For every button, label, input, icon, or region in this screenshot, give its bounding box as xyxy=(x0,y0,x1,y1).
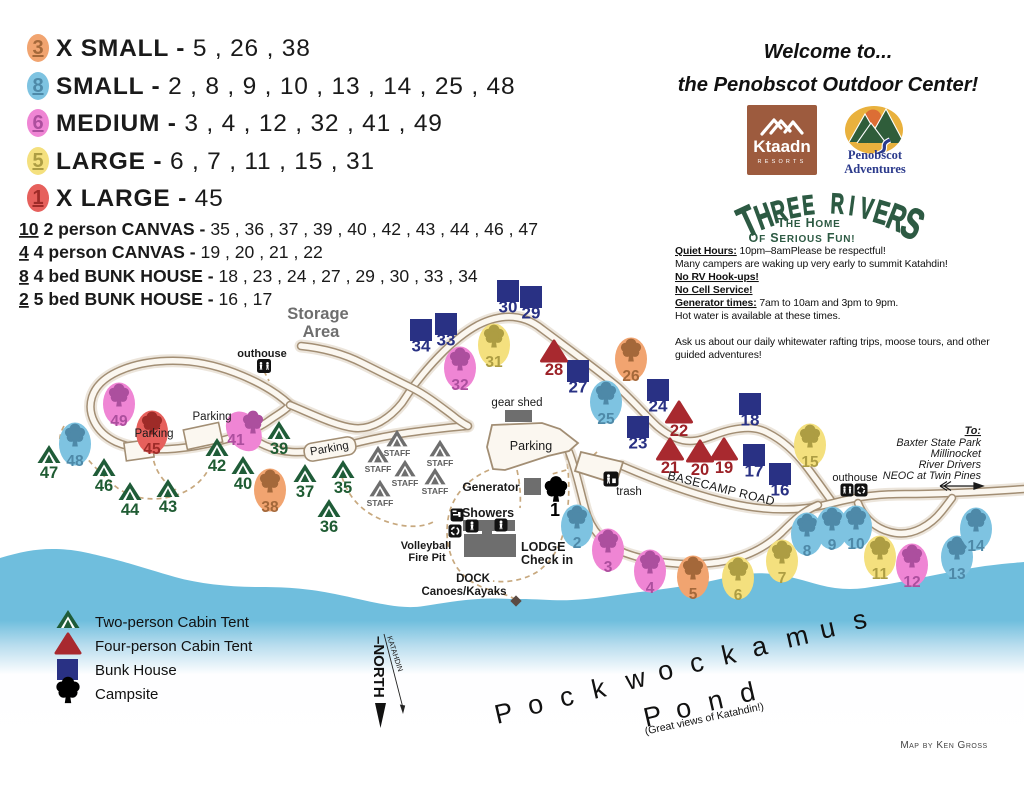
svg-text:Quiet Hours: 10pm–8amPlease be: Quiet Hours: 10pm–8amPlease be respectfu… xyxy=(675,246,886,257)
svg-text:Ask us about our daily whitewa: Ask us about our daily whitewater raftin… xyxy=(675,337,990,348)
svg-text:1: 1 xyxy=(550,500,560,520)
svg-text:44: 44 xyxy=(121,501,140,519)
svg-text:9: 9 xyxy=(828,537,837,554)
svg-text:24: 24 xyxy=(649,397,668,416)
svg-text:STAFF: STAFF xyxy=(427,458,454,468)
svg-text:Campsite: Campsite xyxy=(95,686,158,703)
svg-text:THE HOME: THE HOME xyxy=(777,216,840,230)
svg-text:Canoes/Kayaks: Canoes/Kayaks xyxy=(421,586,506,598)
svg-text:X SMALL - 5 , 26 , 38: X SMALL - 5 , 26 , 38 xyxy=(56,35,311,62)
svg-text:Adventures: Adventures xyxy=(844,162,906,176)
svg-text:No RV Hook-ups!: No RV Hook-ups! xyxy=(675,272,759,283)
svg-text:Parking: Parking xyxy=(193,411,232,423)
svg-text:29: 29 xyxy=(522,304,541,323)
svg-text:–NORTH: –NORTH xyxy=(370,636,387,698)
svg-text:32: 32 xyxy=(451,377,468,394)
svg-text:RESORTS: RESORTS xyxy=(758,159,807,165)
svg-text:R: R xyxy=(830,188,845,221)
svg-text:To:: To: xyxy=(965,425,982,437)
svg-text:OF SERIOUS FUN!: OF SERIOUS FUN! xyxy=(749,231,856,245)
svg-text:MEDIUM - 3 , 4 , 12 , 32 , 41: MEDIUM - 3 , 4 , 12 , 32 , 41 , 49 xyxy=(56,110,443,137)
svg-text:43: 43 xyxy=(159,498,177,516)
svg-text:26: 26 xyxy=(622,368,640,385)
svg-text:Storage: Storage xyxy=(287,305,348,323)
svg-text:STAFF: STAFF xyxy=(392,478,419,488)
svg-text:Fire Pit: Fire Pit xyxy=(408,552,446,564)
svg-text:3: 3 xyxy=(32,37,43,59)
svg-text:STAFF: STAFF xyxy=(384,448,411,458)
svg-text:34: 34 xyxy=(412,337,431,356)
svg-text:35: 35 xyxy=(334,479,352,497)
svg-text:No Cell Service!: No Cell Service! xyxy=(675,285,753,296)
svg-text:40: 40 xyxy=(234,475,252,493)
svg-text:45: 45 xyxy=(143,441,161,458)
svg-text:8 4 bed BUNK HOUSE - 18 , 23 ,: 8 4 bed BUNK HOUSE - 18 , 23 , 24 , 27 ,… xyxy=(19,266,478,286)
svg-text:4 4 person CANVAS - 19 , 20 ,: 4 4 person CANVAS - 19 , 20 , 21 , 22 xyxy=(19,242,323,262)
svg-text:33: 33 xyxy=(437,331,456,350)
svg-text:Map by Ken Gross: Map by Ken Gross xyxy=(900,740,987,751)
svg-text:guided adventures!: guided adventures! xyxy=(675,350,762,361)
svg-text:23: 23 xyxy=(629,434,648,453)
svg-text:Penobscot: Penobscot xyxy=(848,148,903,162)
svg-text:Many campers are waking up ver: Many campers are waking up very early to… xyxy=(675,259,948,270)
svg-text:Parking: Parking xyxy=(135,428,174,440)
svg-text:8: 8 xyxy=(32,75,43,97)
svg-text:I: I xyxy=(847,190,856,221)
svg-text:X LARGE - 45: X LARGE - 45 xyxy=(56,185,224,212)
svg-text:36: 36 xyxy=(320,518,338,536)
svg-text:Welcome to...: Welcome to... xyxy=(764,41,893,63)
svg-text:STAFF: STAFF xyxy=(365,464,392,474)
svg-text:10: 10 xyxy=(847,536,864,553)
svg-text:11: 11 xyxy=(872,566,889,583)
svg-text:LARGE - 6 , 7 , 11 , 15 , 31: LARGE - 6 , 7 , 11 , 15 , 31 xyxy=(56,148,375,175)
svg-text:6: 6 xyxy=(734,587,743,604)
svg-text:48: 48 xyxy=(66,453,84,470)
svg-text:2: 2 xyxy=(573,535,582,552)
svg-text:Check in: Check in xyxy=(521,553,573,567)
svg-text:7: 7 xyxy=(778,570,787,587)
svg-text:14: 14 xyxy=(967,538,985,555)
svg-text:Parking: Parking xyxy=(510,439,552,453)
svg-text:STAFF: STAFF xyxy=(367,498,394,508)
svg-text:Two-person Cabin Tent: Two-person Cabin Tent xyxy=(95,614,250,631)
svg-text:27: 27 xyxy=(569,378,588,397)
svg-text:42: 42 xyxy=(208,457,226,475)
svg-text:8: 8 xyxy=(803,543,812,560)
svg-text:19: 19 xyxy=(715,459,733,477)
svg-text:Four-person Cabin Tent: Four-person Cabin Tent xyxy=(95,638,253,655)
svg-text:28: 28 xyxy=(545,361,563,379)
svg-text:STAFF: STAFF xyxy=(422,486,449,496)
svg-text:5: 5 xyxy=(32,150,43,172)
svg-text:Bunk House: Bunk House xyxy=(95,662,177,679)
svg-text:38: 38 xyxy=(261,499,279,516)
svg-text:the Penobscot Outdoor Center!: the Penobscot Outdoor Center! xyxy=(678,74,979,96)
svg-text:LODGE: LODGE xyxy=(521,540,565,554)
svg-text:1: 1 xyxy=(32,187,43,209)
svg-text:3: 3 xyxy=(604,559,613,576)
svg-text:18: 18 xyxy=(741,411,760,430)
svg-text:15: 15 xyxy=(801,454,819,471)
svg-text:37: 37 xyxy=(296,483,314,501)
svg-text:25: 25 xyxy=(597,411,615,428)
svg-text:4: 4 xyxy=(646,580,655,597)
svg-text:31: 31 xyxy=(485,354,503,371)
svg-text:Generator times: 7am to 10am a: Generator times: 7am to 10am and 3pm to … xyxy=(675,298,898,309)
svg-text:39: 39 xyxy=(270,440,288,458)
svg-text:Area: Area xyxy=(303,323,341,341)
svg-text:41: 41 xyxy=(227,432,245,449)
svg-text:SMALL - 2 , 8 , 9 , 10 , 13 ,: SMALL - 2 , 8 , 9 , 10 , 13 , 14 , 25 , … xyxy=(56,73,515,100)
svg-text:Ktaadn: Ktaadn xyxy=(753,137,811,156)
svg-text:DOCK: DOCK xyxy=(456,573,491,585)
svg-text:5: 5 xyxy=(689,586,698,603)
svg-text:6: 6 xyxy=(32,112,43,134)
svg-text:Showers: Showers xyxy=(462,506,514,520)
svg-text:trash: trash xyxy=(616,486,642,498)
svg-text:2 5 bed BUNK HOUSE - 16 , 17: 2 5 bed BUNK HOUSE - 16 , 17 xyxy=(19,289,272,309)
svg-text:Generator: Generator xyxy=(462,480,520,494)
svg-text:47: 47 xyxy=(40,464,58,482)
svg-text:12: 12 xyxy=(903,574,920,591)
svg-text:13: 13 xyxy=(948,566,966,583)
svg-text:outhouse: outhouse xyxy=(237,348,287,360)
svg-text:49: 49 xyxy=(110,413,128,430)
svg-text:NEOC at Twin Pines: NEOC at Twin Pines xyxy=(883,470,982,482)
svg-text:22: 22 xyxy=(670,422,688,440)
svg-text:Hot water is available at thes: Hot water is available at these times. xyxy=(675,311,840,322)
svg-text:gear shed: gear shed xyxy=(491,397,542,409)
svg-text:46: 46 xyxy=(95,477,113,495)
svg-text:Volleyball: Volleyball xyxy=(401,540,452,552)
svg-text:10 2 person CANVAS - 35 , 36 ,: 10 2 person CANVAS - 35 , 36 , 37 , 39 ,… xyxy=(19,219,538,239)
svg-text:outhouse: outhouse xyxy=(832,472,877,484)
svg-text:17: 17 xyxy=(745,462,764,481)
svg-text:30: 30 xyxy=(499,298,518,317)
